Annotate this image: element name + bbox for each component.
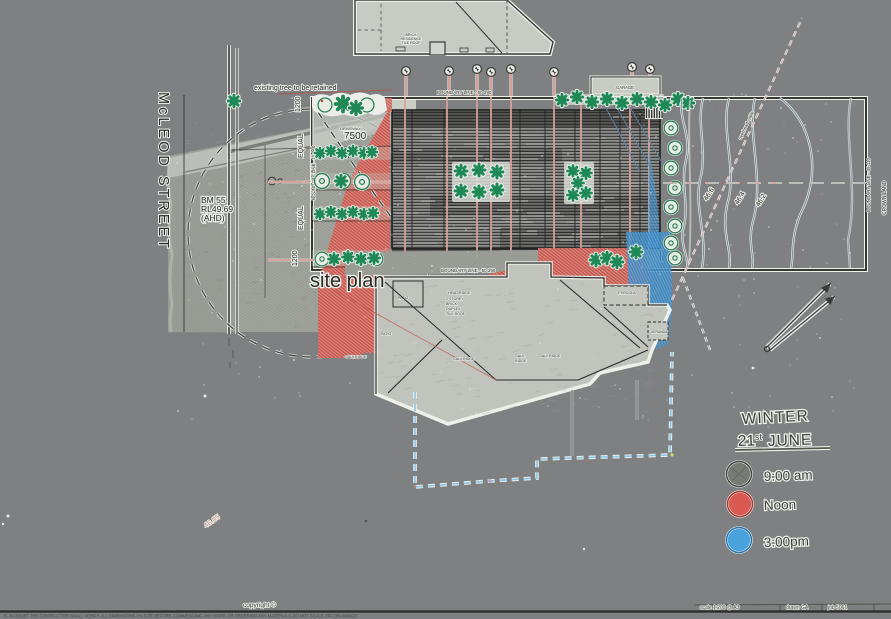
svg-text:TILE ROOF: TILE ROOF <box>402 41 422 45</box>
svg-text:BRICK: BRICK <box>446 302 458 306</box>
svg-text:BOUNDARY LINE - 50 290: BOUNDARY LINE - 50 290 <box>441 268 496 273</box>
svg-text:GALV.RIDGE: GALV.RIDGE <box>345 355 367 359</box>
svg-text:GALV.RIDGE: GALV.RIDGE <box>539 354 561 358</box>
svg-text:1200: 1200 <box>292 250 299 266</box>
svg-text:st: st <box>755 432 763 442</box>
svg-text:BOUNDARY LINE - 45 110: BOUNDARY LINE - 45 110 <box>866 157 871 212</box>
svg-text:copyright ©: copyright © <box>243 601 276 609</box>
svg-text:GALV.: GALV. <box>515 354 525 358</box>
svg-text:drawn GA: drawn GA <box>786 605 809 611</box>
svg-text:site plan: site plan <box>310 270 385 292</box>
svg-text:TILE ROOF: TILE ROOF <box>446 312 466 316</box>
svg-text:RIDGE: RIDGE <box>515 359 527 363</box>
svg-text:BOUNDARY LINE - 50 290: BOUNDARY LINE - 50 290 <box>437 90 492 95</box>
svg-text:21: 21 <box>738 432 756 450</box>
svg-text:CROWN LAND: CROWN LAND <box>882 180 888 215</box>
svg-text:IF IN DOUBT THE CONTRACTOR SHA: IF IN DOUBT THE CONTRACTOR SHALL VERIFY … <box>4 614 357 619</box>
svg-text:7500: 7500 <box>344 131 367 142</box>
svg-text:(AHD): (AHD) <box>201 213 225 223</box>
svg-text:VERANDA: VERANDA <box>651 330 668 334</box>
svg-text:HEAD/RIDGE: HEAD/RIDGE <box>448 291 471 295</box>
svg-text:EQUAL: EQUAL <box>298 134 305 158</box>
svg-text:WINTER: WINTER <box>741 408 809 428</box>
svg-text:Noon: Noon <box>764 497 797 513</box>
svg-text:2 STOREY: 2 STOREY <box>446 297 464 301</box>
svg-text:GALV.RIDGE: GALV.RIDGE <box>453 357 475 361</box>
svg-text:9:00 am: 9:00 am <box>764 467 813 484</box>
svg-text:existing tree to be retained: existing tree to be retained <box>254 85 337 92</box>
svg-text:DUPLEX: DUPLEX <box>446 307 461 311</box>
svg-text:1200: 1200 <box>295 96 302 112</box>
svg-text:EQUAL: EQUAL <box>298 206 305 230</box>
svg-text:3:00pm: 3:00pm <box>764 533 810 550</box>
svg-text:GARAGE: GARAGE <box>616 85 634 90</box>
svg-text:McLEOD STREET: McLEOD STREET <box>155 92 171 251</box>
svg-text:scale 1:200 @ A3: scale 1:200 @ A3 <box>700 605 739 611</box>
svg-text:job 5061: job 5061 <box>827 605 847 611</box>
svg-text:PATIO: PATIO <box>381 332 391 336</box>
